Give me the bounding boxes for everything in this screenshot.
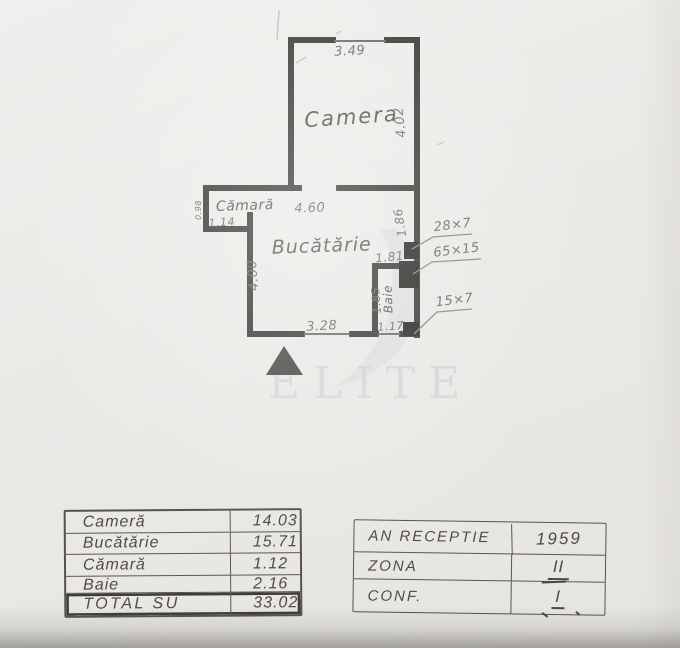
total-row: TOTAL SU 33.02	[66, 591, 300, 616]
conf-value: I	[510, 581, 604, 614]
info-label: AN RECEPTIE	[354, 527, 511, 546]
leader-line	[414, 309, 472, 334]
duct-block	[403, 322, 419, 336]
table-row: ZONA II	[354, 551, 605, 582]
dimension-camara-depth: 0.98	[194, 200, 203, 220]
leader-line	[413, 259, 481, 274]
table-row: AN RECEPTIE 1959	[354, 520, 605, 555]
area-table: Cameră 14.03 Bucătărie 15.71 Cămară 1.12…	[64, 508, 303, 618]
room-label: Cămară	[66, 555, 230, 574]
duct-block	[404, 242, 419, 259]
reception-year: 1959	[511, 522, 606, 555]
dimension-kitchen-width: 4.60	[294, 200, 325, 216]
room-name-camera-name: Camera	[304, 102, 400, 133]
table-row: CONF. I	[353, 578, 604, 615]
table-row: Baie 2.16	[66, 574, 300, 593]
dimension-camara-width: 1.14	[208, 215, 235, 230]
info-label: CONF.	[353, 587, 510, 606]
dimension-duct-65x15: 65×15	[433, 240, 481, 261]
dimension-camera-depth: 4.02	[391, 106, 409, 138]
watermark-text: ELITE	[268, 358, 473, 409]
room-name-camara-name: Cămară	[216, 197, 274, 215]
scan-mark	[277, 10, 279, 40]
total-area: 33.02	[230, 592, 300, 614]
dimension-baie-width: 1.17	[377, 319, 404, 334]
table-row: Bucătărie 15.71	[66, 531, 300, 554]
wall-segment	[203, 185, 294, 191]
info-table: AN RECEPTIE 1959 ZONA II CONF. I	[352, 519, 606, 616]
wall-segment	[247, 331, 305, 337]
room-name-kitchen-name: Bucătărie	[271, 233, 372, 258]
dimension-camera-width: 3.49	[334, 43, 366, 60]
dimension-duct-15x7: 15×7	[435, 291, 474, 311]
room-label: Bucătărie	[66, 534, 230, 553]
dimension-duct-28x7: 28×7	[433, 216, 472, 236]
wall-segment	[288, 37, 336, 43]
room-name-baie-name: Baie	[381, 285, 396, 314]
scan-mark	[336, 31, 341, 34]
wall-segment	[336, 185, 420, 191]
dimension-dim-181: 1.81	[375, 249, 405, 266]
scanned-floor-plan-page: { "watermark": { "text": "ELITE" }, "col…	[0, 0, 680, 648]
dimension-kitchen-window-width: 3.28	[306, 318, 338, 335]
room-label: Baie	[66, 576, 230, 595]
dimension-kitchen-depth: 4.00	[245, 259, 262, 291]
table-row: Cămară 1.12	[66, 552, 300, 576]
room-area: 15.71	[230, 532, 300, 552]
zone-value: II	[511, 554, 605, 581]
table-row: Cameră 14.03	[66, 510, 300, 533]
zone-roman-numeral: II	[548, 556, 570, 579]
duct-block	[399, 261, 419, 288]
scan-mark	[296, 57, 306, 63]
room-label: Cameră	[66, 512, 230, 531]
info-label: ZONA	[354, 557, 511, 576]
room-area: 1.12	[230, 553, 300, 574]
room-area: 2.16	[230, 575, 300, 593]
conf-roman-numeral: I	[551, 587, 565, 609]
scan-mark	[437, 142, 444, 145]
wall-segment	[288, 37, 294, 190]
room-area: 14.03	[230, 510, 300, 531]
total-label: TOTAL SU	[66, 595, 230, 614]
